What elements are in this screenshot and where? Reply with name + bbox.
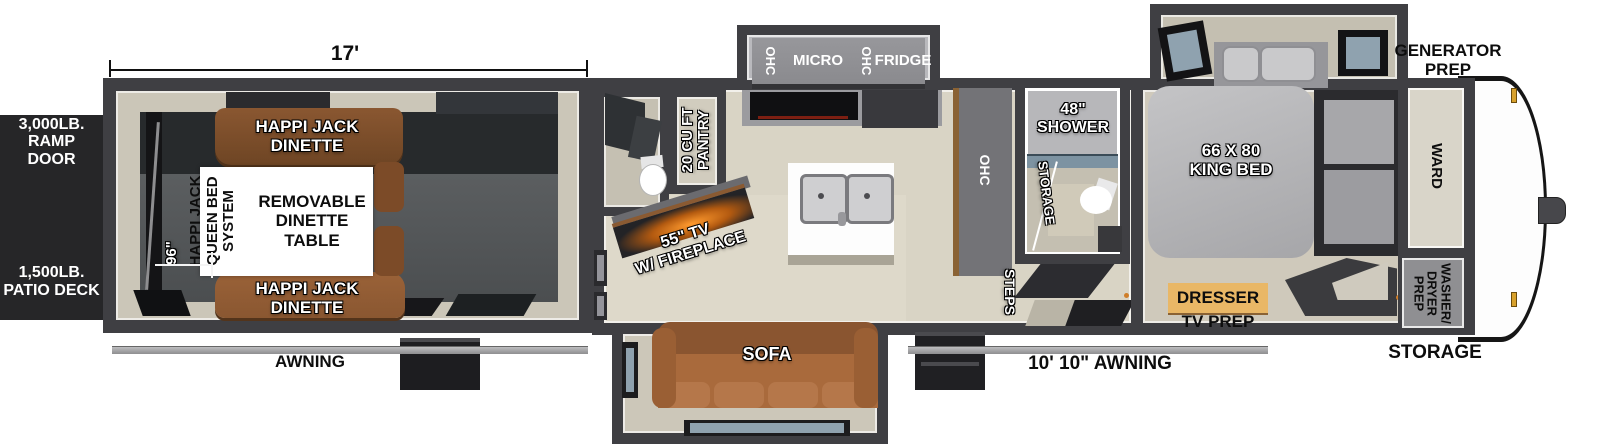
sofa-slide-window-glass bbox=[690, 423, 844, 433]
entry-steps-exterior bbox=[915, 332, 985, 390]
garage-length-label: 17' bbox=[295, 42, 395, 66]
pillow-left bbox=[1222, 46, 1260, 82]
dinette-armrest-top bbox=[374, 162, 404, 212]
half-bath-toilet bbox=[639, 164, 667, 196]
clearance-light-top bbox=[1511, 88, 1517, 103]
steps-label: STEPS bbox=[999, 262, 1019, 322]
living-window-glass-1 bbox=[597, 255, 604, 281]
patio-deck-label: 1,500LB. PATIO DECK bbox=[2, 262, 101, 302]
tv-prep-label: TV PREP bbox=[1178, 312, 1258, 332]
bedroom-window-right-glass bbox=[1346, 37, 1380, 69]
pillow-right bbox=[1260, 46, 1316, 82]
bedroom-window-left-glass bbox=[1167, 30, 1203, 73]
awning-main-label: 10' 10" AWNING bbox=[1018, 353, 1182, 375]
ward-label: WARD bbox=[1426, 136, 1446, 196]
dinette-top-label: HAPPI JACK DINETTE bbox=[217, 118, 397, 156]
range-glow bbox=[758, 116, 848, 119]
dinette-bottom-label: HAPPI JACK DINETTE bbox=[217, 280, 397, 318]
sink-drain-left bbox=[818, 193, 824, 199]
garage-cabinet-right bbox=[436, 92, 558, 114]
generator-prep-label: GENERATOR PREP bbox=[1393, 41, 1503, 79]
sofa-cushion-3 bbox=[768, 382, 818, 408]
garage-width-label: 96" bbox=[162, 223, 182, 283]
hitch-pin bbox=[1538, 197, 1566, 224]
width-dimension-tick bbox=[211, 252, 213, 278]
garage-speaker-right bbox=[446, 294, 537, 316]
dimension-tick-left bbox=[109, 60, 111, 77]
wardrobe-door-top bbox=[1324, 100, 1394, 164]
width-dimension-line bbox=[155, 264, 213, 266]
living-window-glass-2 bbox=[597, 296, 604, 316]
floorplan-canvas: 3,000LB. RAMP DOOR 1,500LB. PATIO DECK 1… bbox=[0, 0, 1600, 447]
wardrobe-door-bottom bbox=[1324, 170, 1394, 244]
bath-toilet bbox=[1080, 186, 1112, 214]
fridge-label: FRIDGE bbox=[872, 50, 934, 72]
ward-wd-divider bbox=[1400, 248, 1464, 258]
dimension-tick-right bbox=[586, 60, 588, 77]
garage-dimension-line bbox=[110, 69, 588, 71]
ramp-door-label: 3,000LB. RAMP DOOR bbox=[2, 122, 101, 162]
bath-vanity bbox=[1098, 226, 1122, 252]
ohc-left-label: OHC bbox=[760, 41, 780, 81]
sofa-armrest-right bbox=[854, 328, 878, 408]
king-bed-label: 66 X 80 KING BED bbox=[1168, 140, 1294, 182]
pantry-label: 20 CU FT PANTRY bbox=[678, 90, 714, 190]
queen-bed-system-label: HAPPI JACK QUEEN BED SYSTEM bbox=[184, 166, 242, 276]
sofa-side-window-glass bbox=[626, 348, 634, 392]
sink-drain-right bbox=[864, 193, 870, 199]
dinette-armrest-bottom bbox=[374, 226, 404, 276]
sofa-cushion-2 bbox=[714, 382, 764, 408]
shower-label: 48" SHOWER bbox=[1028, 100, 1118, 138]
clearance-light-bottom bbox=[1511, 292, 1517, 307]
micro-label: MICRO bbox=[782, 50, 854, 72]
storage-front-label: STORAGE bbox=[1392, 342, 1478, 364]
fridge-cabinet bbox=[862, 90, 938, 128]
dresser-label: DRESSER bbox=[1168, 285, 1268, 311]
washer-dryer-label: WASHER/ DRYER PREP bbox=[1410, 260, 1455, 328]
garage-corner-shadow bbox=[133, 290, 190, 316]
awning-rear-label: AWNING bbox=[255, 352, 365, 372]
sofa-armrest-left bbox=[652, 328, 676, 408]
sink-right bbox=[846, 174, 894, 224]
ohc-kitchen-label: OHC bbox=[974, 140, 994, 200]
sink-faucet bbox=[838, 212, 846, 226]
entry-steps-tread bbox=[921, 362, 979, 366]
removable-table-label: REMOVABLE DINETTE TABLE bbox=[253, 188, 371, 254]
sofa-label: SOFA bbox=[722, 344, 812, 366]
entry-door-knob bbox=[1124, 293, 1129, 298]
